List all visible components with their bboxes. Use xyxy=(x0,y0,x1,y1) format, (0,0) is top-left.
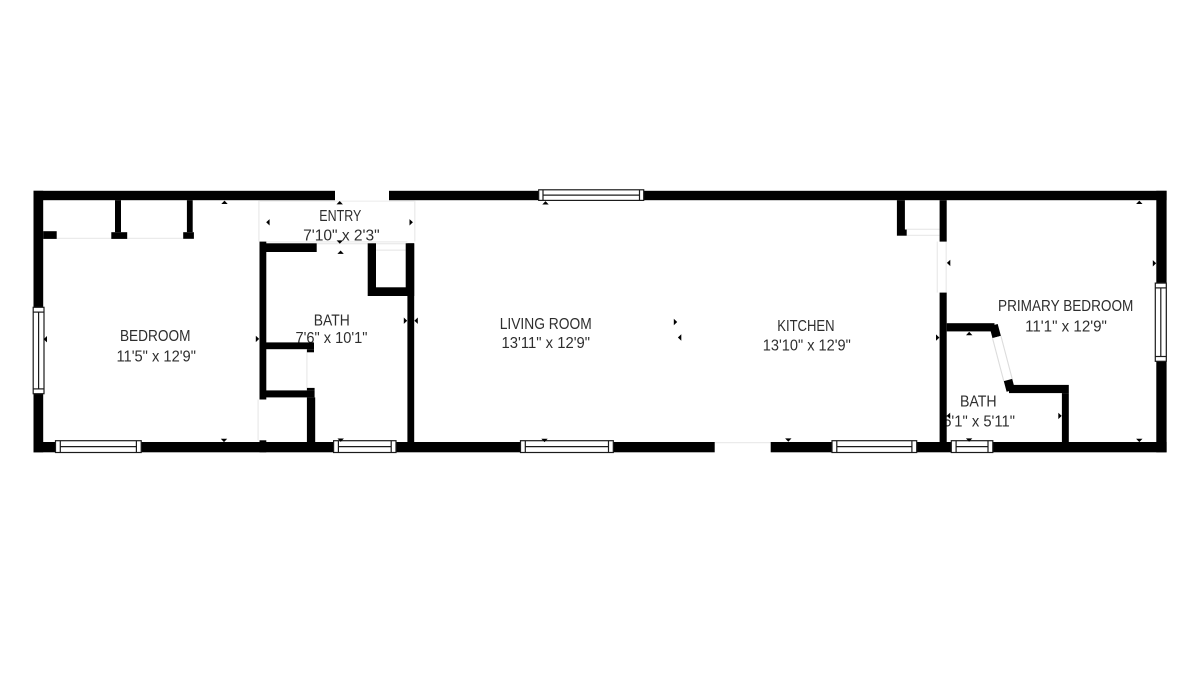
svg-text:BEDROOM: BEDROOM xyxy=(120,328,191,345)
svg-text:11'1" x 12'9": 11'1" x 12'9" xyxy=(1025,319,1107,336)
svg-text:ENTRY: ENTRY xyxy=(319,208,361,225)
svg-text:BATH: BATH xyxy=(960,394,997,411)
svg-text:5'1" x 5'11": 5'1" x 5'11" xyxy=(943,413,1015,430)
svg-text:11'5" x 12'9": 11'5" x 12'9" xyxy=(116,349,196,366)
svg-text:13'10" x 12'9": 13'10" x 12'9" xyxy=(763,337,851,354)
svg-text:LIVING ROOM: LIVING ROOM xyxy=(500,316,592,333)
svg-text:BATH: BATH xyxy=(314,312,350,329)
svg-text:13'11" x 12'9": 13'11" x 12'9" xyxy=(502,335,591,352)
svg-text:PRIMARY BEDROOM: PRIMARY BEDROOM xyxy=(998,298,1133,315)
svg-text:KITCHEN: KITCHEN xyxy=(777,318,834,335)
